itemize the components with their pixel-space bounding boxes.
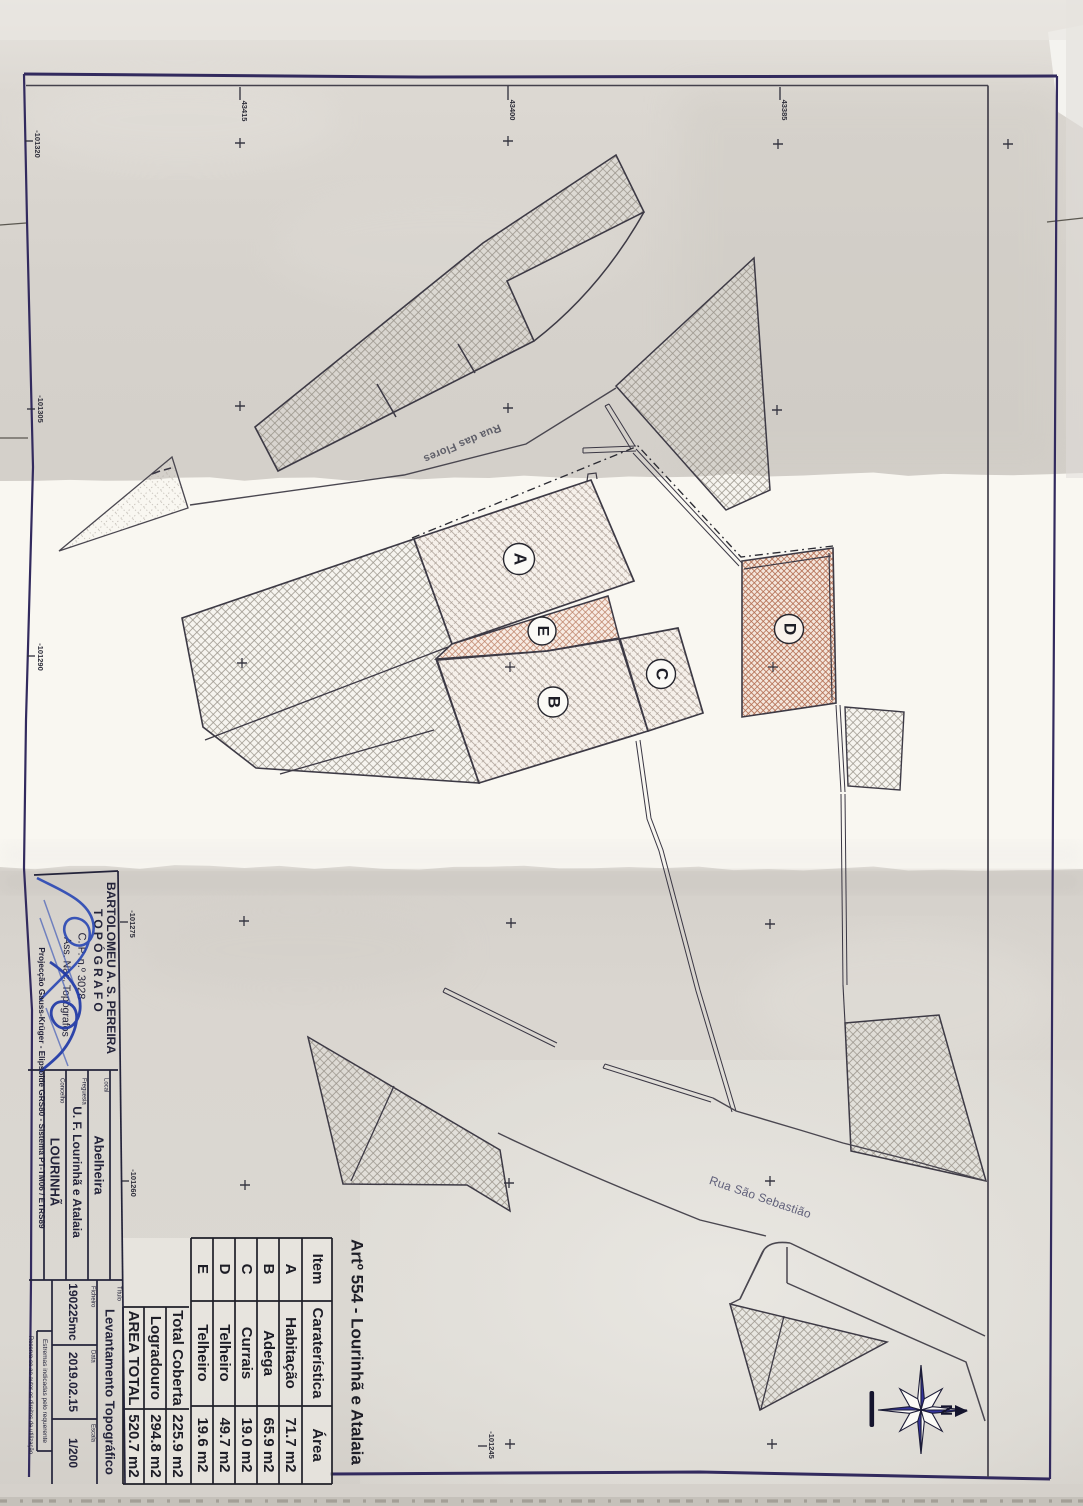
svg-text:Reserva-se ao autor os direito: Reserva-se ao autor os direitos de utili… [27,1336,33,1455]
svg-text:-101290: -101290 [36,643,45,671]
svg-text:C: C [653,668,672,680]
svg-text:Data: Data [89,1350,95,1363]
svg-text:65.9 m2: 65.9 m2 [260,1417,277,1472]
svg-text:Logradouro: Logradouro [147,1316,164,1400]
svg-text:D: D [781,623,800,635]
svg-text:Habitação: Habitação [282,1317,299,1389]
svg-text:49.7 m2: 49.7 m2 [216,1417,233,1472]
svg-text:Escala: Escala [89,1424,95,1443]
svg-text:Total Coberta: Total Coberta [169,1310,186,1406]
svg-text:Adega: Adega [260,1330,277,1377]
svg-text:294.8 m2: 294.8 m2 [147,1414,164,1477]
svg-text:190225mc: 190225mc [66,1283,80,1341]
svg-text:Telheiro: Telheiro [216,1324,233,1381]
svg-text:2019.02.15: 2019.02.15 [66,1352,80,1412]
svg-text:U. F. Lourinhã e Atalaia: U. F. Lourinhã e Atalaia [70,1106,84,1238]
svg-text:Abelheira: Abelheira [92,1135,107,1195]
svg-text:19.0 m2: 19.0 m2 [238,1417,255,1472]
svg-text:Telheiro: Telheiro [194,1324,211,1381]
svg-text:71.7 m2: 71.7 m2 [282,1417,299,1472]
svg-text:LOURINHÃ: LOURINHÃ [48,1138,63,1207]
svg-text:1/200: 1/200 [66,1438,80,1468]
svg-text:Item: Item [309,1254,326,1285]
svg-text:Concelho: Concelho [58,1078,64,1104]
svg-text:43415: 43415 [240,101,249,122]
svg-text:-101245: -101245 [487,1431,496,1459]
svg-text:E: E [534,626,551,637]
svg-text:520.7 m2: 520.7 m2 [125,1414,142,1477]
svg-text:Estremas indicadas pelo requer: Estremas indicadas pelo requerente [41,1339,48,1443]
svg-text:E: E [194,1264,211,1274]
svg-text:-101305: -101305 [36,395,45,423]
svg-text:BARTOLOMEU A. S. PEREIRA: BARTOLOMEU A. S. PEREIRA [104,882,118,1054]
svg-text:Currais: Currais [238,1327,255,1380]
svg-text:B: B [260,1264,277,1275]
svg-text:19.6 m2: 19.6 m2 [194,1417,211,1472]
svg-text:A: A [282,1264,299,1275]
svg-text:Caraterística: Caraterística [309,1308,326,1400]
svg-text:B: B [545,696,564,708]
svg-text:Freguesia: Freguesia [80,1078,86,1105]
svg-text:Título: Título [115,1286,121,1302]
svg-text:Ass. Nac. Topógrafos: Ass. Nac. Topógrafos [59,937,73,1037]
svg-text:Artº 554 - Lourinhã e Atalaia: Artº 554 - Lourinhã e Atalaia [348,1239,367,1465]
svg-text:-101275: -101275 [128,910,137,938]
svg-text:A: A [510,553,530,566]
svg-text:225.9 m2: 225.9 m2 [169,1414,186,1477]
svg-text:Ficheiro: Ficheiro [89,1286,95,1308]
svg-text:Área: Área [309,1428,326,1462]
svg-text:43385: 43385 [780,100,789,121]
svg-text:-101320: -101320 [33,130,42,158]
svg-text:Projecção Gauss-Krüger - Elips: Projecção Gauss-Krüger - Elipsoide GRS80… [37,947,46,1229]
svg-text:Local: Local [102,1078,108,1092]
svg-text:-101260: -101260 [129,1169,138,1197]
svg-text:C: C [238,1264,255,1275]
svg-text:D: D [216,1264,233,1275]
svg-text:N: N [937,1404,954,1416]
svg-text:Levantamento Topográfico: Levantamento Topográfico [103,1309,118,1475]
svg-text:AREA TOTAL: AREA TOTAL [125,1311,142,1406]
svg-text:43400: 43400 [508,100,517,121]
